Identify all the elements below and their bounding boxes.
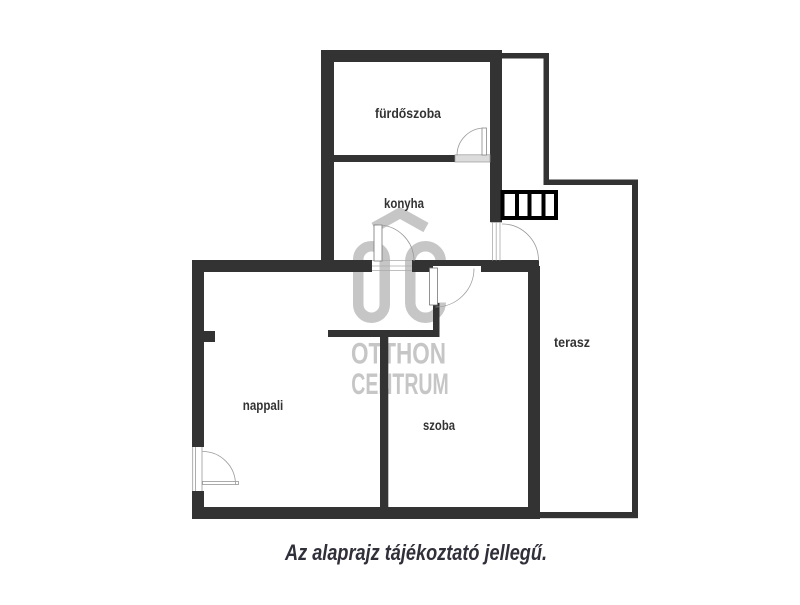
svg-text:nappali: nappali <box>243 397 284 413</box>
svg-text:Az alaprajz tájékoztató jelleg: Az alaprajz tájékoztató jellegű. <box>284 540 547 565</box>
svg-text:konyha: konyha <box>384 195 424 211</box>
svg-text:fürdőszoba: fürdőszoba <box>375 105 441 121</box>
svg-text:OTTHON: OTTHON <box>351 338 446 371</box>
svg-text:szoba: szoba <box>423 417 455 433</box>
svg-text:CENTRUM: CENTRUM <box>351 368 449 401</box>
svg-text:terasz: terasz <box>554 334 590 350</box>
